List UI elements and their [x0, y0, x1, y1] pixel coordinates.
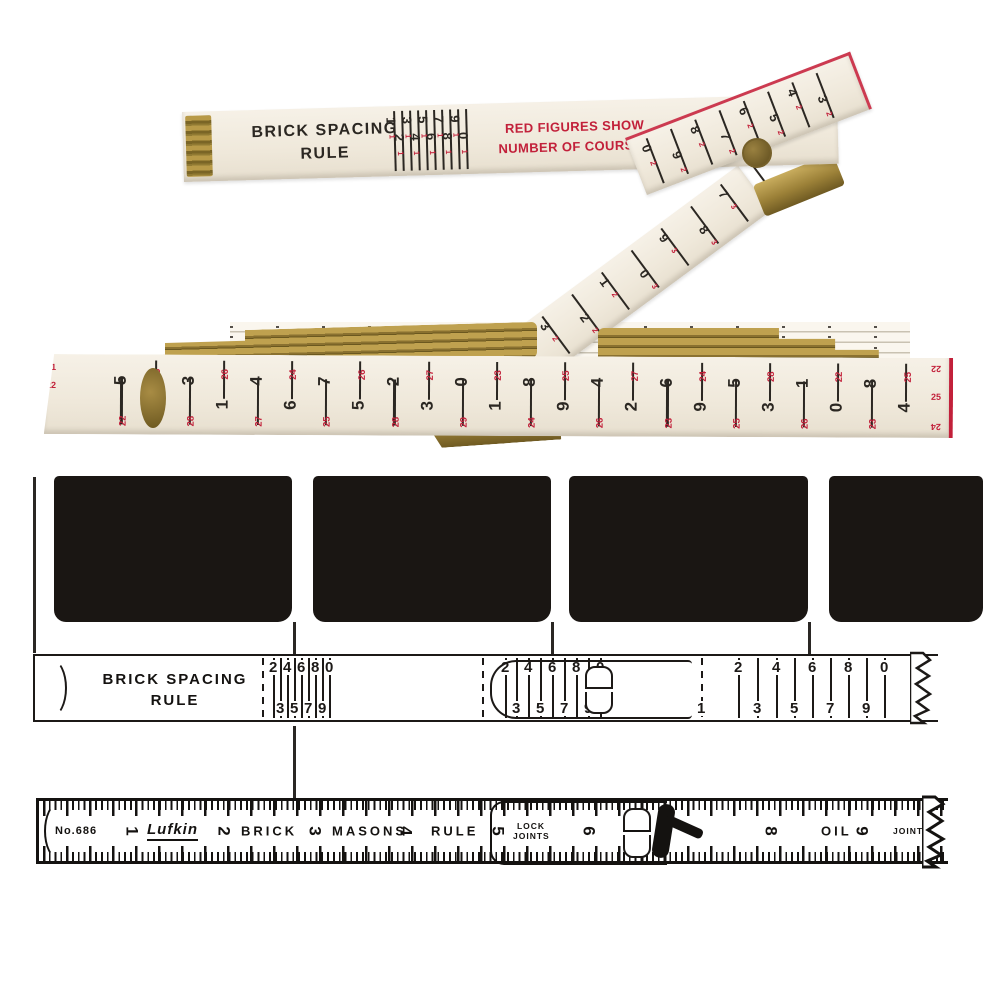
- scale-mark: 624: [274, 355, 308, 435]
- scale-mark: 426: [582, 356, 616, 436]
- edge-course-number: 25: [931, 392, 941, 402]
- scale-mark: 725: [309, 355, 343, 435]
- edge-course-number: 21: [46, 362, 56, 372]
- rounded-end-cap: [37, 659, 67, 717]
- edge-course-number: 22: [931, 364, 941, 374]
- scale-mark: 328: [752, 357, 786, 437]
- scale-mark: 228: [377, 355, 411, 435]
- hinge-rivet: [742, 138, 772, 168]
- scale-mark: 022: [820, 357, 854, 437]
- rule-front-stick: 21 22 22 25 24 5221253281264276247255262…: [44, 354, 953, 438]
- leader-line-2-lower: [293, 726, 296, 799]
- scale-mark: 328: [172, 355, 206, 435]
- brick-block-3: [569, 476, 808, 622]
- scale-mark: 427: [240, 355, 274, 435]
- product-image: 52423222120393837363 BRICK SPACING RULE …: [0, 0, 1000, 1000]
- scale-mark: 425: [889, 358, 923, 438]
- torn-edge: [910, 651, 934, 725]
- scale-mark: 123: [479, 356, 513, 436]
- scale-mark: 526: [343, 355, 377, 435]
- front-stick-hinge-rivet: [140, 368, 166, 428]
- leader-line-4: [808, 622, 811, 656]
- leader-line-1: [33, 477, 36, 653]
- scale-mark: 029: [445, 356, 479, 436]
- edge-course-number: 24: [931, 422, 941, 432]
- brick-block-2: [313, 476, 551, 622]
- diagram-label: BRICK SPACING RULE: [75, 669, 275, 711]
- scale-mark: 227: [616, 357, 650, 437]
- scale-mark: 925: [547, 356, 581, 436]
- rule-title-line2: RULE: [235, 140, 416, 168]
- scale-mark: 126: [786, 357, 820, 437]
- diagram-label-line1: BRICK SPACING: [75, 669, 275, 690]
- brick-block-4: [829, 476, 983, 622]
- brick-spacing-rule-diagram: BRICK SPACING RULE 234567890234567890123…: [33, 654, 938, 722]
- scale-mark: 525: [718, 357, 752, 437]
- edge-course-number: 22: [46, 380, 56, 390]
- top-scale: 11213141516171819101: [390, 104, 472, 176]
- scale-mark: 01: [462, 104, 472, 174]
- scale-mark: 623: [650, 357, 684, 437]
- brick-block-1: [54, 476, 292, 622]
- scale-mark: 823: [855, 358, 889, 438]
- brass-end-cap: [185, 115, 213, 177]
- scale-mark: 824: [513, 356, 547, 436]
- stack-scale: 5221253281264276247255262283270291238249…: [104, 354, 923, 438]
- diagram-label-line2: RULE: [75, 690, 275, 711]
- leader-line-2-upper: [293, 622, 296, 657]
- scale-mark: 327: [411, 356, 445, 436]
- scale-mark: 924: [684, 357, 718, 437]
- scale-mark: 522: [104, 354, 138, 434]
- scale-mark: 126: [206, 355, 240, 435]
- leader-line-3: [551, 622, 554, 656]
- hinge-joint-lobe: [623, 808, 651, 858]
- hinge-joint-lobe: [585, 666, 613, 714]
- torn-edge: [922, 794, 946, 870]
